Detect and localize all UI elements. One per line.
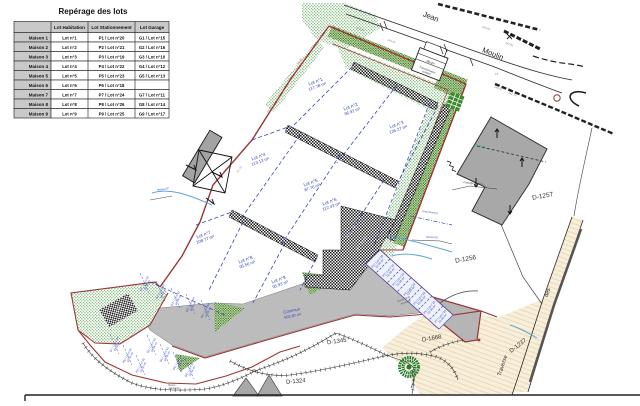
svg-text:G1 / Lot n°15: G1 / Lot n°15 <box>139 35 166 40</box>
svg-text:Lot n°9: Lot n°9 <box>62 111 77 116</box>
svg-text:G8 / Lot n°14: G8 / Lot n°14 <box>139 102 166 107</box>
svg-text:P8 / Lot n°26: P8 / Lot n°26 <box>99 102 125 107</box>
svg-text:Lot Habitation: Lot Habitation <box>54 25 85 30</box>
svg-text:142.05: 142.05 <box>494 85 504 92</box>
svg-text:D-1324: D-1324 <box>286 378 307 386</box>
svg-text:Maison 9: Maison 9 <box>29 111 49 116</box>
svg-text:Moulin: Moulin <box>481 45 505 62</box>
svg-text:Maison 7: Maison 7 <box>29 92 49 97</box>
svg-text:G9 / Lot n°17: G9 / Lot n°17 <box>139 111 166 116</box>
svg-text:Lot n°6: Lot n°6 <box>62 83 77 88</box>
svg-text:Lot n°7: Lot n°7 <box>62 92 77 97</box>
svg-text:P9 / Lot n°25: P9 / Lot n°25 <box>99 111 125 116</box>
svg-text:existante: existante <box>169 386 180 390</box>
svg-text:Lot n°1: Lot n°1 <box>62 35 77 40</box>
svg-text:G7 / Lot n°11: G7 / Lot n°11 <box>139 92 166 97</box>
svg-text:Lot n°3: Lot n°3 <box>62 54 77 59</box>
svg-text:Repérage des lots: Repérage des lots <box>59 7 128 16</box>
svg-text:Maison 8: Maison 8 <box>29 102 49 107</box>
svg-text:Maison 5: Maison 5 <box>29 73 49 78</box>
svg-text:Lot n°5: Lot n°5 <box>62 73 77 78</box>
svg-text:Lot Stationnement: Lot Stationnement <box>91 25 132 30</box>
svg-text:D-1345: D-1345 <box>327 338 348 347</box>
svg-text:P2 / Lot n°21: P2 / Lot n°21 <box>99 45 125 50</box>
svg-text:Maison 4: Maison 4 <box>29 64 49 69</box>
svg-text:G5 / Lot n°13: G5 / Lot n°13 <box>139 73 166 78</box>
svg-text:G4 / Lot n°12: G4 / Lot n°12 <box>139 64 166 69</box>
svg-text:143.05: 143.05 <box>482 25 492 32</box>
svg-text:P3 / Lot n°19: P3 / Lot n°19 <box>99 54 125 59</box>
svg-text:P5 / Lot n°23: P5 / Lot n°23 <box>99 73 125 78</box>
svg-text:Maison 2: Maison 2 <box>29 45 49 50</box>
svg-text:Jean: Jean <box>422 9 440 23</box>
svg-text:Lot n°4: Lot n°4 <box>62 64 77 69</box>
svg-text:142.82: 142.82 <box>505 41 515 48</box>
svg-text:13.: 13. <box>495 72 499 76</box>
svg-text:143.65: 143.65 <box>387 38 397 45</box>
svg-text:réseau EU: réseau EU <box>426 235 439 240</box>
svg-text:Maison 1: Maison 1 <box>29 35 49 40</box>
svg-text:P4 / Lot n°22: P4 / Lot n°22 <box>99 64 125 69</box>
svg-text:branchement: branchement <box>422 209 438 215</box>
svg-text:Maison 6: Maison 6 <box>29 83 49 88</box>
svg-text:P6 / Lot n°18: P6 / Lot n°18 <box>99 83 125 88</box>
svg-text:D-1256: D-1256 <box>455 254 478 265</box>
svg-text:Lot Garage: Lot Garage <box>140 25 165 30</box>
svg-text:Maison 3: Maison 3 <box>29 54 49 59</box>
svg-text:P1 / Lot n°20: P1 / Lot n°20 <box>99 35 125 40</box>
svg-text:Lot n°8: Lot n°8 <box>62 102 77 107</box>
svg-text:D-1257: D-1257 <box>532 191 555 202</box>
svg-text:22.75: 22.75 <box>236 165 244 173</box>
svg-text:G3 / Lot n°10: G3 / Lot n°10 <box>139 54 166 59</box>
svg-text:G2 / Lot n°16: G2 / Lot n°16 <box>139 45 166 50</box>
svg-text:Lot n°2: Lot n°2 <box>62 45 77 50</box>
svg-text:P7 / Lot n°24: P7 / Lot n°24 <box>99 92 125 97</box>
